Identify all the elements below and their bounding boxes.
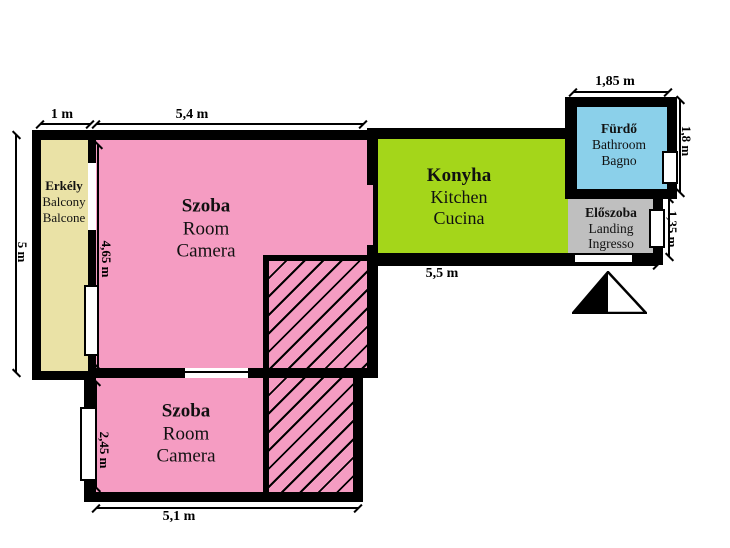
bathroom-name: Fürdő bbox=[592, 121, 646, 137]
wall-kitchen-top bbox=[367, 128, 575, 139]
dimension-label-bathroom-height: 1,8 m bbox=[678, 126, 694, 156]
balcony-name-it: Balcone bbox=[42, 210, 85, 226]
landing-name-it: Ingresso bbox=[585, 236, 637, 252]
wall-top-main bbox=[32, 130, 378, 140]
room-upper-name: Szoba bbox=[176, 195, 235, 218]
wall-bath-top bbox=[565, 97, 677, 107]
kitchen-name-en: Kitchen bbox=[427, 186, 491, 208]
room-lower-label: Szoba Room Camera bbox=[156, 400, 215, 468]
bathroom-name-en: Bathroom bbox=[592, 137, 646, 153]
bathroom-label: Fürdő Bathroom Bagno bbox=[592, 121, 646, 169]
room-upper-name-en: Room bbox=[176, 218, 235, 241]
dimension-label-room-upper-height: 4,65 m bbox=[98, 241, 114, 278]
bathroom-window bbox=[662, 151, 678, 184]
entry-door-opening bbox=[575, 255, 632, 262]
landing-name-en: Landing bbox=[585, 220, 637, 236]
landing-window bbox=[649, 209, 665, 248]
dimension-label-room-lower-height: 2,45 m bbox=[96, 432, 112, 469]
room-lower-name-it: Camera bbox=[156, 445, 215, 468]
landing-label: Előszoba Landing Ingresso bbox=[585, 205, 637, 252]
floor-plan: 1 m 5,4 m 1,85 m 5,5 m 5,1 m 5 m 4,65 m … bbox=[0, 0, 730, 548]
room-lower-name: Szoba bbox=[156, 400, 215, 423]
kitchen-name: Konyha bbox=[427, 165, 491, 187]
balcony-door-opening bbox=[88, 163, 96, 230]
wall-bath-left bbox=[565, 97, 577, 199]
dimension-label-bathroom-width: 1,85 m bbox=[595, 74, 635, 90]
room-lower-name-en: Room bbox=[156, 423, 215, 446]
room-upper-name-it: Camera bbox=[176, 240, 235, 263]
dimension-label-room-lower-width: 5,1 m bbox=[163, 509, 196, 525]
bathroom-name-it: Bagno bbox=[592, 153, 646, 169]
kitchen-label: Konyha Kitchen Cucina bbox=[427, 165, 491, 230]
balcony-name-en: Balcony bbox=[42, 194, 85, 210]
dimension-line-bathroom-width bbox=[573, 91, 668, 93]
balcony-label: Erkély Balcony Balcone bbox=[42, 178, 85, 226]
wall-room-lower-bottom bbox=[84, 492, 363, 502]
balcony-name: Erkély bbox=[42, 178, 85, 194]
dimension-line-room-upper-width bbox=[96, 123, 363, 125]
dimension-label-left-side-height: 5 m bbox=[14, 242, 30, 263]
dimension-line-balcony-width bbox=[40, 123, 90, 125]
wall-interroom-right bbox=[248, 368, 378, 378]
wall-balcony-right-b bbox=[88, 230, 96, 285]
north-arrow-icon bbox=[572, 271, 647, 314]
dimension-label-landing-height: 1,35 m bbox=[664, 211, 680, 248]
wall-interroom-left bbox=[88, 368, 185, 378]
kitchen-door-opening bbox=[367, 185, 373, 245]
balcony-room bbox=[41, 140, 88, 371]
hatched-area-upper bbox=[263, 255, 367, 368]
dimension-label-kitchen-entry-width: 5,5 m bbox=[426, 266, 459, 282]
wall-balcony-left bbox=[32, 130, 41, 380]
dimension-label-balcony-width: 1 m bbox=[51, 107, 73, 123]
dimension-line-room-lower-width bbox=[96, 507, 358, 509]
kitchen-name-it: Cucina bbox=[427, 208, 491, 230]
dimension-line-kitchen-entry-width bbox=[375, 264, 657, 266]
hatched-area-lower bbox=[263, 378, 353, 492]
dimension-label-room-upper-width: 5,4 m bbox=[176, 107, 209, 123]
wall-room-lower-right bbox=[353, 378, 363, 502]
room-upper-label: Szoba Room Camera bbox=[176, 195, 235, 263]
interroom-door-opening bbox=[185, 371, 248, 373]
landing-name: Előszoba bbox=[585, 205, 637, 221]
